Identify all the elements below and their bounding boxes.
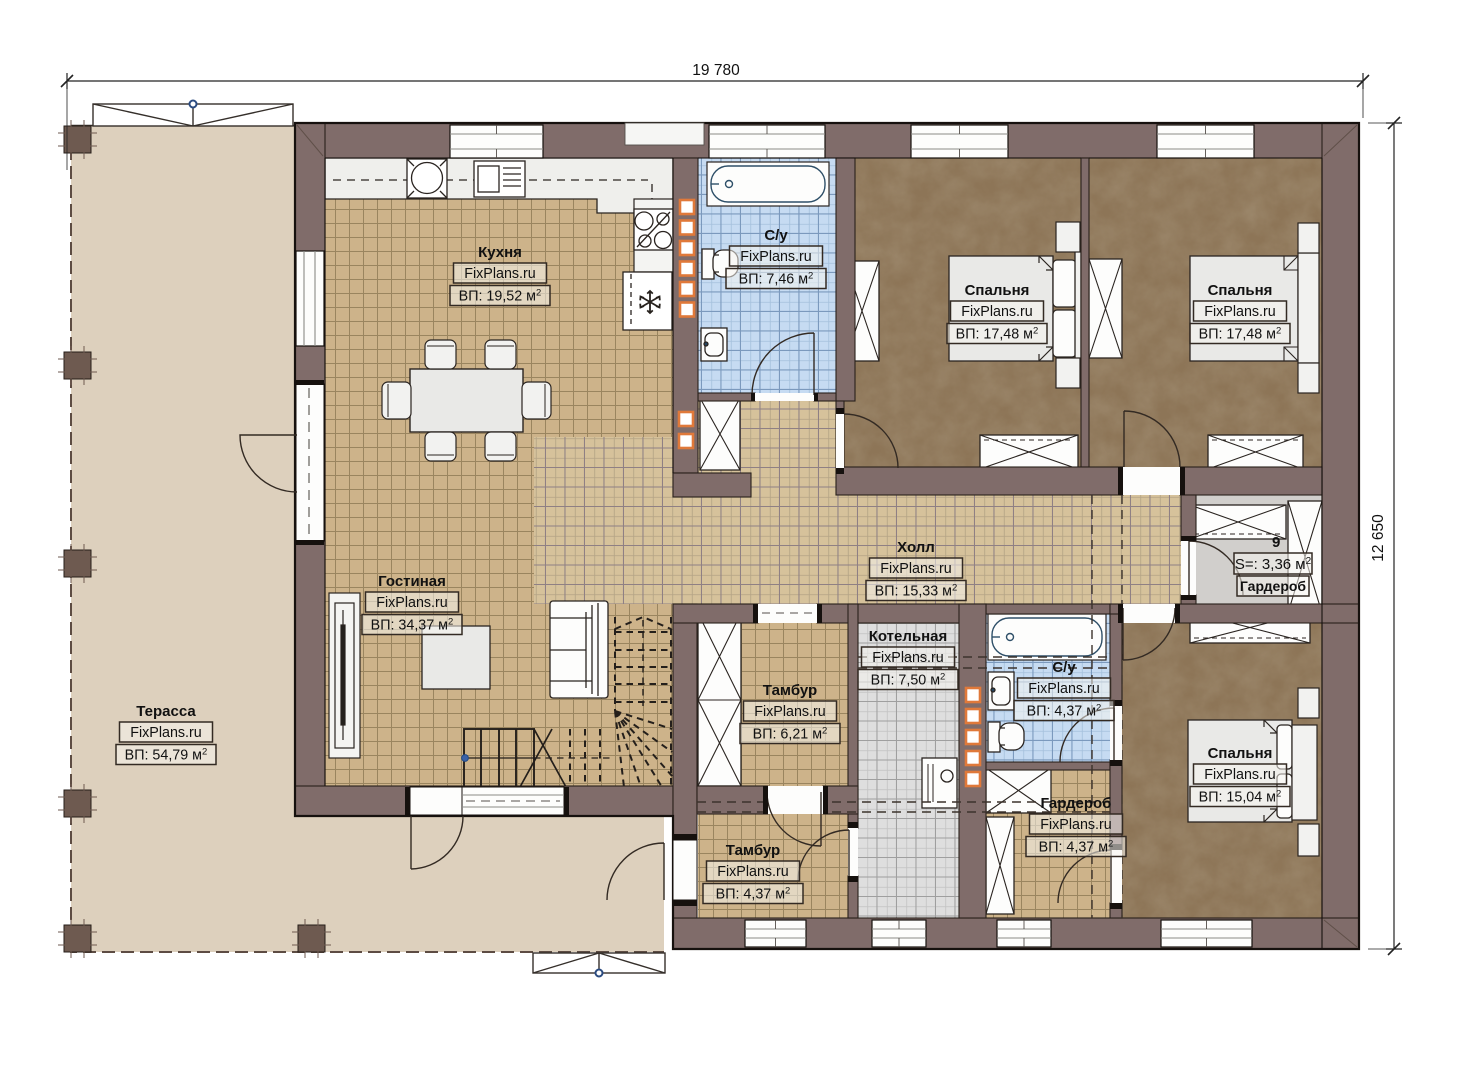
svg-text:FixPlans.ru: FixPlans.ru <box>1040 817 1112 833</box>
svg-text:FixPlans.ru: FixPlans.ru <box>740 249 812 265</box>
svg-text:FixPlans.ru: FixPlans.ru <box>880 561 952 577</box>
svg-text:Терасса: Терасса <box>136 703 196 720</box>
svg-text:FixPlans.ru: FixPlans.ru <box>1204 304 1276 320</box>
svg-text:FixPlans.ru: FixPlans.ru <box>1028 681 1100 697</box>
svg-text:FixPlans.ru: FixPlans.ru <box>961 304 1033 320</box>
svg-text:Котельная: Котельная <box>869 628 948 645</box>
svg-text:Гардероб: Гардероб <box>1041 795 1112 812</box>
svg-text:19 780: 19 780 <box>692 62 740 79</box>
svg-text:FixPlans.ru: FixPlans.ru <box>754 704 826 720</box>
svg-text:Спальня: Спальня <box>965 282 1030 299</box>
svg-text:Спальня: Спальня <box>1208 282 1273 299</box>
svg-text:Гостиная: Гостиная <box>378 573 446 590</box>
svg-text:Кухня: Кухня <box>478 244 522 261</box>
svg-text:Холл: Холл <box>897 539 935 556</box>
svg-text:Тамбур: Тамбур <box>726 842 780 859</box>
svg-text:Тамбур: Тамбур <box>763 682 817 699</box>
svg-text:12 650: 12 650 <box>1370 514 1387 562</box>
svg-text:ВП: 4,37 м2: ВП: 4,37 м2 <box>1027 703 1102 720</box>
svg-text:ВП: 15,04 м2: ВП: 15,04 м2 <box>1199 789 1282 806</box>
svg-text:ВП: 17,48 м2: ВП: 17,48 м2 <box>956 326 1039 343</box>
svg-text:ВП: 19,52 м2: ВП: 19,52 м2 <box>459 288 542 305</box>
svg-text:ВП: 15,33 м2: ВП: 15,33 м2 <box>875 583 958 600</box>
svg-text:Гардероб: Гардероб <box>1240 578 1307 594</box>
svg-text:С/у: С/у <box>764 227 788 244</box>
svg-text:S=: 3,36 м2: S=: 3,36 м2 <box>1235 556 1312 573</box>
svg-text:ВП: 4,37 м2: ВП: 4,37 м2 <box>1039 839 1114 856</box>
svg-text:ВП: 34,37 м2: ВП: 34,37 м2 <box>371 617 454 634</box>
svg-text:9: 9 <box>1272 534 1280 551</box>
svg-text:ВП: 54,79 м2: ВП: 54,79 м2 <box>125 747 208 764</box>
svg-text:ВП: 6,21 м2: ВП: 6,21 м2 <box>753 726 828 743</box>
svg-text:FixPlans.ru: FixPlans.ru <box>376 595 448 611</box>
svg-text:FixPlans.ru: FixPlans.ru <box>717 864 789 880</box>
svg-text:FixPlans.ru: FixPlans.ru <box>872 650 944 666</box>
svg-text:ВП: 17,48 м2: ВП: 17,48 м2 <box>1199 326 1282 343</box>
svg-text:ВП: 4,37 м2: ВП: 4,37 м2 <box>716 886 791 903</box>
svg-text:ВП: 7,50 м2: ВП: 7,50 м2 <box>871 672 946 689</box>
svg-text:С/у: С/у <box>1052 659 1076 676</box>
svg-text:ВП: 7,46 м2: ВП: 7,46 м2 <box>739 271 814 288</box>
svg-text:FixPlans.ru: FixPlans.ru <box>130 725 202 741</box>
svg-text:FixPlans.ru: FixPlans.ru <box>1204 767 1276 783</box>
svg-text:FixPlans.ru: FixPlans.ru <box>464 266 536 282</box>
svg-text:Спальня: Спальня <box>1208 745 1273 762</box>
